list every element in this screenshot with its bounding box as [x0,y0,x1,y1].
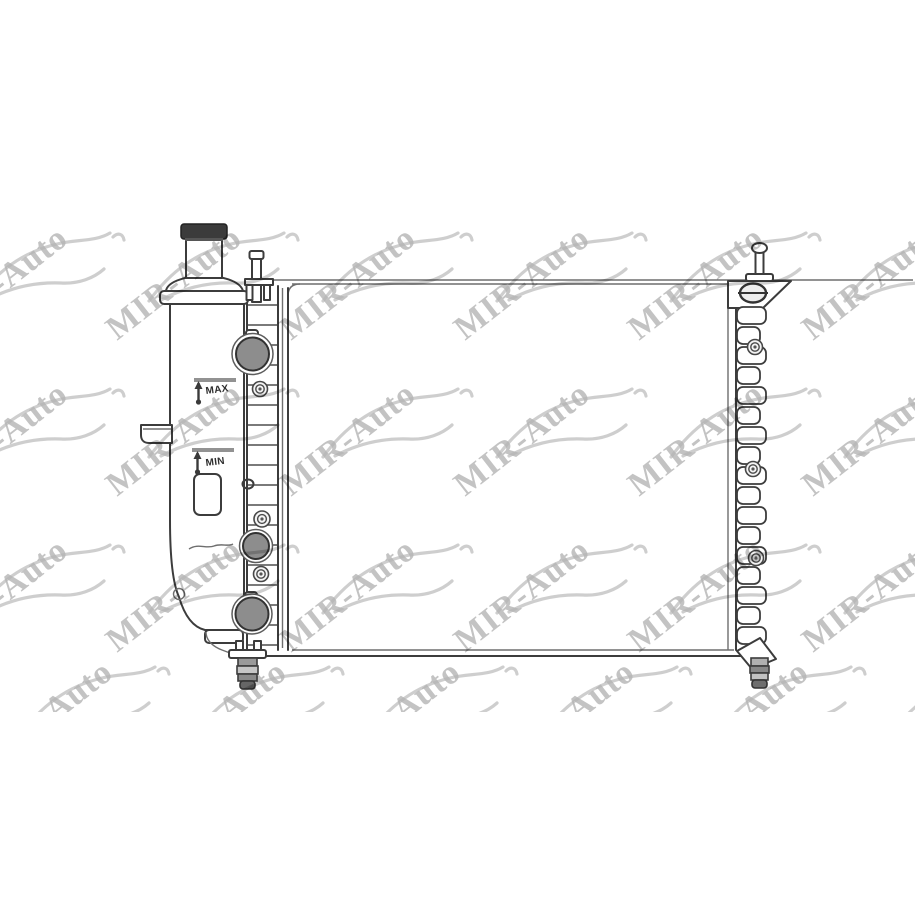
right-tank-pod [737,447,760,464]
watermark-text: MIR-Auto [666,653,816,781]
watermark-text: MIR-Auto [318,653,468,781]
filler-pipe-cap [250,251,264,259]
watermark-tile: MIR-Auto [840,653,915,781]
watermark-text: MIR-Auto [795,375,915,503]
right-tank-pod [737,507,766,524]
watermark-tile: MIR-Auto [621,375,820,503]
min-level-line [192,448,234,452]
watermark-tile: MIR-Auto [447,531,646,659]
min-label: MIN [205,456,225,469]
right-tank-pod [737,487,760,504]
watermark-layer: MIR-AutoMIR-AutoMIR-AutoMIR-AutoMIR-Auto… [0,219,915,781]
pipe-bracket-right-foot [264,285,270,300]
watermark-tile: MIR-Auto [795,219,915,347]
watermark-text: MIR-Auto [144,653,294,781]
pipe-bracket-left-foot [247,285,253,300]
watermark-tile: MIR-Auto [0,531,124,659]
watermark-tile: MIR-Auto [447,375,646,503]
right-tank-pod [737,427,766,444]
right-tank [728,243,791,688]
boss-2 [254,511,270,527]
watermark-text: MIR-Auto [0,653,120,781]
watermark-tile: MIR-Auto [0,219,124,347]
mid-port [243,533,269,559]
right-tank-pod [737,307,766,324]
left-drain-bar [229,650,266,658]
watermark-tile: MIR-Auto [273,219,472,347]
min-arrow-foot [195,469,200,474]
inlet-port [236,338,269,371]
watermark-tile: MIR-Auto [0,375,124,503]
watermark-tile: MIR-Auto [273,375,472,503]
watermark-tile: MIR-Auto [795,375,915,503]
right-boss-1 [748,340,763,355]
watermark-tile: MIR-Auto [492,653,691,781]
watermark-tile: MIR-Auto [318,653,517,781]
pin-flange [746,274,773,281]
watermark-tile: MIR-Auto [447,219,646,347]
right-tank-pod [737,607,760,624]
watermark-text: MIR-Auto [840,653,915,781]
watermark-tile: MIR-Auto [795,531,915,659]
watermark-tile: MIR-Auto [621,531,820,659]
watermark-text: MIR-Auto [795,219,915,347]
watermark-tile: MIR-Auto [273,531,472,659]
watermark-text: MIR-Auto [795,531,915,659]
watermark-tile: MIR-Auto [0,653,169,781]
outlet-port [236,598,269,631]
core-corner-arc [288,284,300,296]
right-boss-2 [746,462,761,477]
radiator-diagram-svg: MAX MIN [0,0,915,915]
radiator-product-image: MAX MIN [0,0,915,915]
boss-3 [254,567,269,582]
watermark-text: MIR-Auto [492,653,642,781]
